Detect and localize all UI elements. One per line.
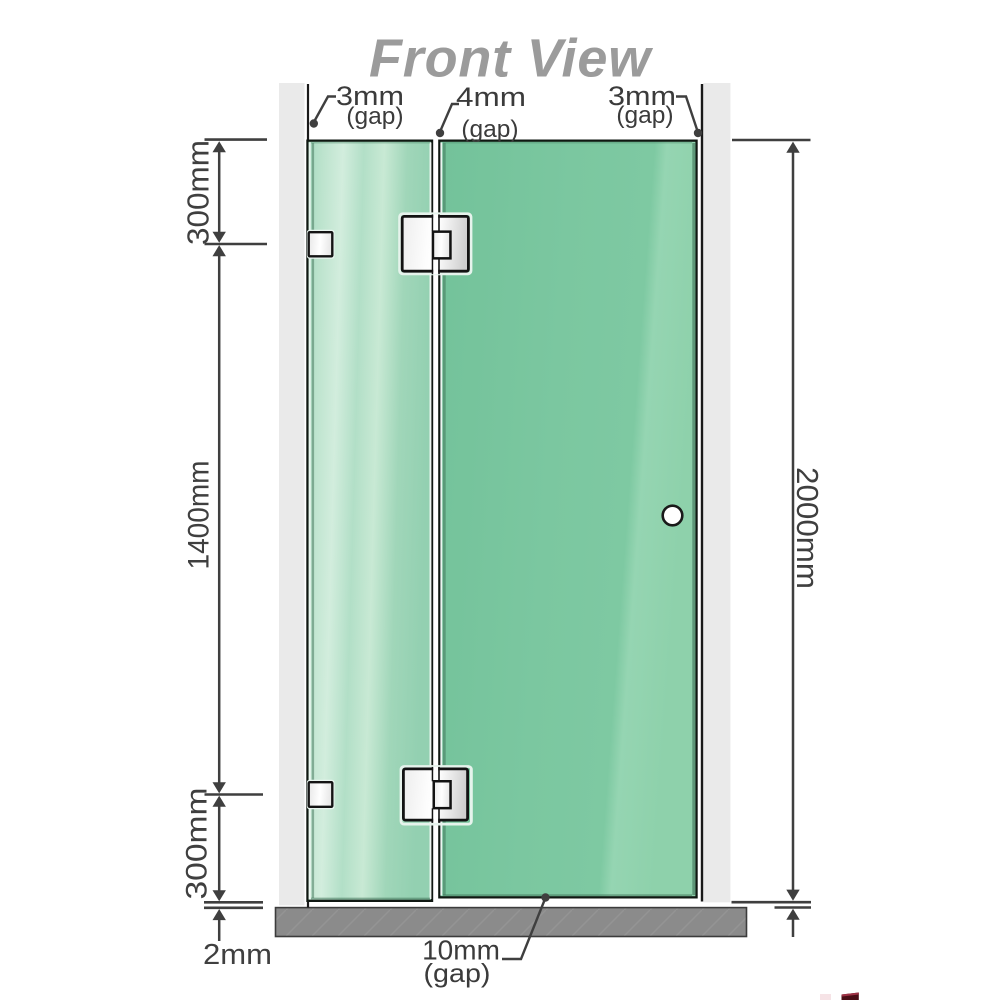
svg-text:300mm: 300mm [181, 788, 214, 900]
svg-text:300mm: 300mm [182, 140, 216, 245]
svg-text:2000mm: 2000mm [790, 467, 824, 589]
svg-text:4mm: 4mm [456, 82, 526, 112]
svg-text:(gap): (gap) [424, 958, 491, 988]
svg-text:2mm: 2mm [203, 939, 272, 971]
svg-text:(gap): (gap) [346, 103, 403, 130]
svg-text:1400mm: 1400mm [183, 461, 216, 570]
svg-text:(gap): (gap) [461, 116, 518, 143]
svg-text:Front View: Front View [369, 29, 653, 89]
svg-text:(gap): (gap) [616, 102, 673, 129]
